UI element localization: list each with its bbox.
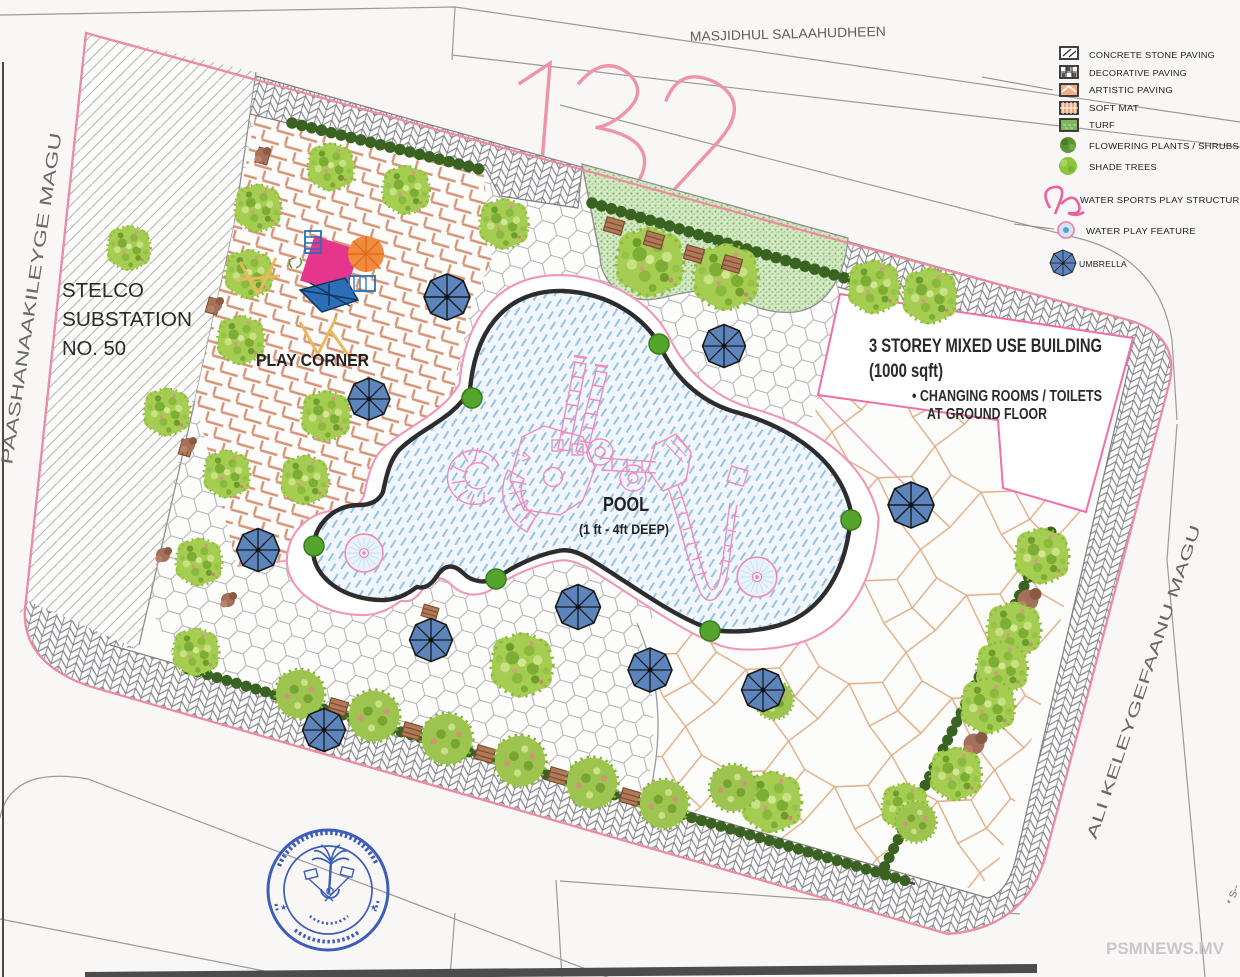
svg-text:SHADE TREES: SHADE TREES — [1089, 162, 1157, 172]
svg-text:STELCO: STELCO — [62, 280, 144, 302]
svg-text:(1 ft - 4ft DEEP): (1 ft - 4ft DEEP) — [579, 521, 669, 537]
svg-text:NO. 50: NO. 50 — [62, 338, 126, 360]
svg-text:UMBRELLA: UMBRELLA — [1079, 259, 1127, 269]
svg-text:AT GROUND FLOOR: AT GROUND FLOOR — [927, 406, 1047, 423]
svg-text:SOFT MAT: SOFT MAT — [1089, 103, 1140, 113]
svg-text:3 STOREY MIXED USE BUILDING: 3 STOREY MIXED USE BUILDING — [869, 335, 1102, 357]
svg-text:CONCRETE STONE PAVING: CONCRETE STONE PAVING — [1089, 50, 1215, 60]
svg-text:• CHANGING ROOMS / TOILETS: • CHANGING ROOMS / TOILETS — [912, 388, 1102, 405]
svg-text:ARTISTIC PAVING: ARTISTIC PAVING — [1089, 85, 1173, 95]
svg-text:PSMNEWS.MV: PSMNEWS.MV — [1106, 939, 1225, 958]
svg-text:POOL: POOL — [603, 494, 649, 516]
svg-text:WATER PLAY FEATURE: WATER PLAY FEATURE — [1086, 226, 1196, 236]
svg-text:PLAY CORNER: PLAY CORNER — [256, 350, 369, 370]
svg-text:SUBSTATION: SUBSTATION — [62, 309, 192, 331]
svg-text:★: ★ — [280, 903, 287, 912]
svg-text:(1000 sqft): (1000 sqft) — [869, 360, 943, 382]
svg-text:DECORATIVE PAVING: DECORATIVE PAVING — [1089, 68, 1187, 78]
svg-text:TURF: TURF — [1089, 120, 1115, 130]
svg-text:FLOWERING PLANTS / SHRUBS: FLOWERING PLANTS / SHRUBS — [1089, 141, 1239, 151]
svg-text:★: ★ — [370, 903, 377, 912]
svg-text:WATER SPORTS PLAY STRUCTURE: WATER SPORTS PLAY STRUCTURE — [1080, 195, 1240, 205]
